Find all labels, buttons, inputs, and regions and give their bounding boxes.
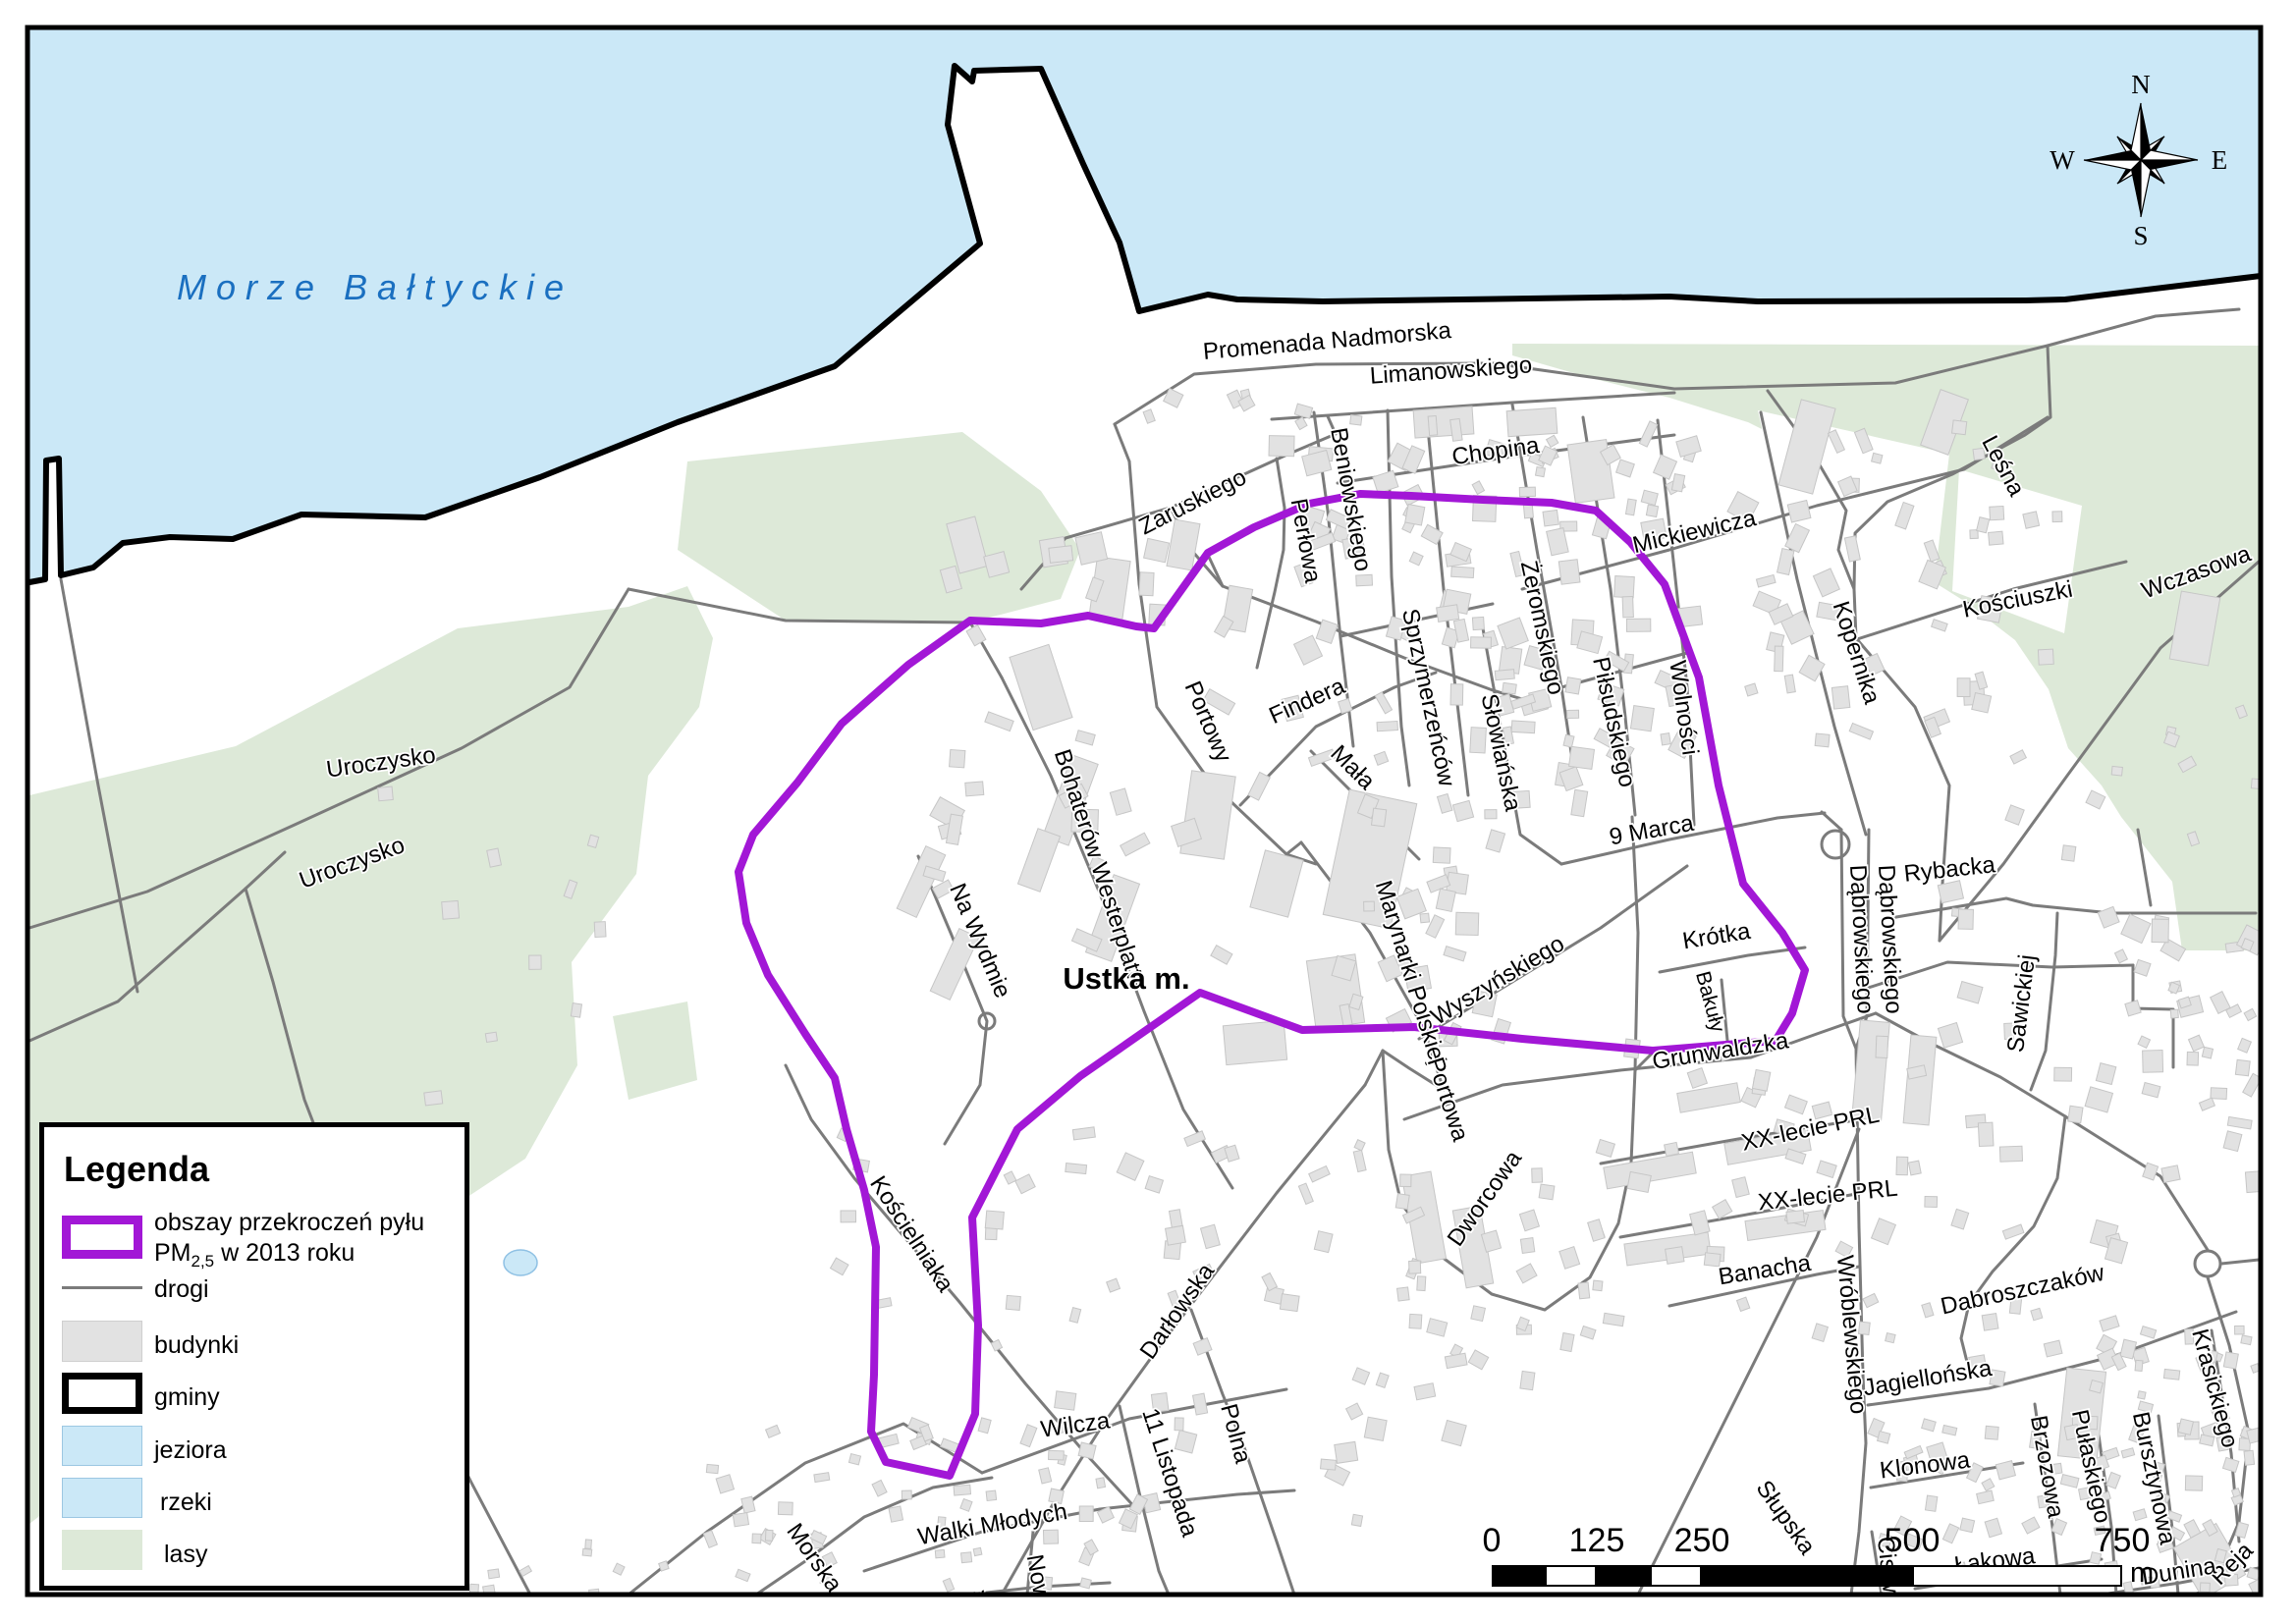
compass-letter-n: N xyxy=(2131,70,2151,99)
street-label: Dabroszczaków xyxy=(1939,1260,2107,1321)
scale-bar-segment xyxy=(1597,1565,1650,1587)
street-label: Limanowskiego xyxy=(1369,352,1533,389)
street-label: Żeglarzy xyxy=(894,1582,987,1624)
legend-label-pm25-zone: obszay przekroczeń pyłu PM2,5 w 2013 rok… xyxy=(154,1208,424,1272)
scale-bar-segment xyxy=(1492,1565,1545,1587)
legend-label-forests: lasy xyxy=(164,1540,207,1570)
pm25-zone-outline xyxy=(738,494,1805,1476)
street-label: Findera xyxy=(1265,673,1349,730)
street-label: Promenada Nadmorska xyxy=(1202,317,1452,365)
scale-bar-segment xyxy=(1545,1565,1598,1587)
legend-swatch-gminy xyxy=(62,1373,142,1414)
legend-label-lakes: jeziora xyxy=(154,1435,227,1466)
legend-box: Legenda obszay przekroczeń pyłu PM2,5 w … xyxy=(39,1122,469,1591)
street-label: Chopina xyxy=(1450,432,1542,470)
lake xyxy=(504,1250,537,1275)
legend-swatch-pm25-zone xyxy=(62,1216,142,1259)
street-label: Klonowa xyxy=(1879,1446,1972,1484)
street-label: Nowa xyxy=(1021,1552,1058,1617)
legend-label-rivers: rzeki xyxy=(160,1488,212,1518)
legend-label-buildings: budynki xyxy=(154,1330,239,1361)
legend-swatch-forests xyxy=(62,1530,142,1570)
street-label: Polna xyxy=(1215,1401,1256,1467)
compass-letter-s: S xyxy=(2133,221,2148,250)
street-label: Sawickiej xyxy=(2002,953,2041,1055)
compass-letter-e: E xyxy=(2212,145,2228,175)
city-label: Ustka m. xyxy=(1063,961,1189,996)
scale-bar-unit: m xyxy=(2130,1557,2154,1590)
scale-bar-segment xyxy=(1702,1565,1912,1587)
street-label: Portowy xyxy=(1179,677,1237,766)
street-label: Rybacka xyxy=(1902,851,1996,888)
sea-label: Morze Bałtyckie xyxy=(177,267,574,307)
legend-swatch-rivers xyxy=(62,1478,142,1518)
street-label: Portowa xyxy=(1422,1055,1474,1146)
scale-bar-segment xyxy=(1912,1565,2122,1587)
street-label: Grunwaldzka xyxy=(1651,1027,1791,1075)
street-label: Mała xyxy=(1325,740,1380,795)
legend-swatch-roads xyxy=(62,1286,142,1289)
legend-label-roads: drogi xyxy=(154,1274,209,1305)
legend-label-gminy: gminy xyxy=(154,1382,220,1413)
legend-title: Legenda xyxy=(64,1149,209,1190)
legend-swatch-lakes xyxy=(62,1426,142,1466)
scale-bar-segment xyxy=(1650,1565,1703,1587)
street-label: Dąbrowskiego xyxy=(1844,864,1879,1014)
scale-bar-tick-label: 500 xyxy=(1885,1522,1941,1560)
legend-swatch-buildings xyxy=(62,1321,142,1362)
scale-bar-tick-label: 250 xyxy=(1674,1522,1730,1560)
map-page: Promenada NadmorskaLimanowskiegoZaruskie… xyxy=(0,0,2296,1624)
street-label: Wyszyńskiego xyxy=(1427,931,1569,1031)
scale-bar-tick-label: 750 xyxy=(2095,1522,2151,1560)
scale-bar-tick-label: 0 xyxy=(1483,1522,1502,1560)
street-label: Jagiellońska xyxy=(1861,1355,1994,1401)
scale-bar-tick-label: 125 xyxy=(1569,1522,1625,1560)
compass-letter-w: W xyxy=(2050,145,2075,175)
street-label: Krótka xyxy=(1680,918,1752,955)
street-label: Słupska xyxy=(1751,1476,1821,1560)
